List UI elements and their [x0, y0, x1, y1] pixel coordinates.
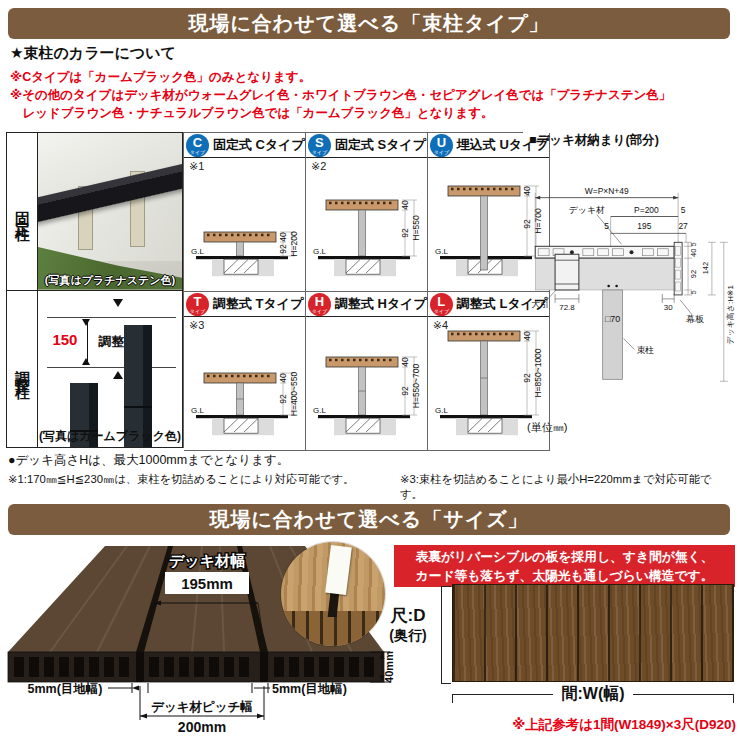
ref-line-top	[47, 317, 177, 318]
note-bullet: ●デッキ高さHは、最大1000mmまでとなります。	[8, 452, 734, 469]
post-type-section: 固定柱 (写真はプラチナステン色) 調整柱	[6, 132, 736, 448]
white-card	[325, 545, 351, 595]
pitch-title: デッキ材ピッチ幅	[151, 700, 253, 714]
depth-label-sub: (奥行)	[372, 627, 444, 645]
badge-sub: タイプ	[312, 309, 327, 314]
gl-label: G.L	[435, 247, 448, 256]
dim-27: 27	[678, 221, 688, 231]
adjustable-post-drawing: 150 調整 (写真はカームブラック色)	[38, 291, 182, 448]
type-cell-c: Cタイプ 固定式 Cタイプ ※1 G.L 40	[184, 133, 306, 292]
pitch-value: 200mm	[178, 719, 226, 735]
adjustable-post-label: 調整柱	[7, 291, 38, 448]
gap-5: 5	[681, 205, 686, 215]
gl-label: G.L	[191, 406, 204, 415]
thickness-label: 40mm	[383, 651, 395, 683]
type-cell-h: Hタイプ 調整式 Hタイプ G.L 40	[306, 292, 428, 451]
badge-letter: S	[315, 136, 324, 149]
badge-letter: T	[194, 295, 202, 308]
color-note-block: ★束柱のカラーについて ※Cタイプは「カームブラック色」のみとなります。 ※その…	[10, 44, 736, 122]
type-h-title: 調整式 Hタイプ	[335, 295, 427, 313]
post-type-grid: Cタイプ 固定式 Cタイプ ※1 G.L 40	[183, 132, 523, 448]
color-note-heading: ★束柱のカラーについて	[10, 44, 736, 63]
deck-width-title: デッキ材幅	[169, 552, 245, 569]
dim-40: 40	[400, 200, 410, 210]
rdim-5a: 5	[690, 242, 697, 246]
type-s-badge: Sタイプ	[308, 134, 331, 157]
deck-height-label: デッキ高さ:H※1	[726, 284, 735, 344]
type-c-badge: Cタイプ	[186, 134, 209, 157]
dim-195: 195	[637, 221, 651, 231]
dim-40: 40	[278, 232, 288, 242]
badge-letter: U	[437, 136, 446, 149]
dim-h: H=550~700	[411, 364, 421, 409]
badge-sub: タイプ	[312, 150, 327, 155]
deck-detail-title: ■デッキ材納まり(部分)	[529, 132, 736, 149]
dim-92: 92	[278, 394, 288, 404]
dim-728: 72.8	[559, 303, 575, 312]
depth-bracket	[441, 586, 451, 684]
badge-letter: C	[193, 136, 202, 149]
type-l-badge: Lタイプ	[430, 293, 453, 316]
dim-92: 92	[400, 386, 410, 396]
type-c-title: 固定式 Cタイプ	[213, 136, 305, 154]
reference-size-note: ※上記参考は1間(W1849)×3尺(D920)	[512, 716, 736, 734]
post-photo-panel: 固定柱 (写真はプラチナステン色) 調整柱	[6, 132, 183, 448]
fixed-post-label: 固定柱	[7, 133, 38, 290]
arrow-up-icon	[113, 371, 123, 379]
fixed-post-row: 固定柱 (写真はプラチナステン色)	[7, 133, 182, 291]
dim-h: H=400~550	[289, 372, 299, 417]
feature-line-2: カード等も落ちず、太陽光も通しづらい構造です。	[416, 566, 714, 585]
feature-line-1: 表裏がリバーシブルの板を採用し、すき間が無く、	[415, 547, 713, 566]
color-note-line2: ※その他のタイプはデッキ材がウォームグレイ色・ホワイトブラウン色・セピアグレイ色…	[10, 86, 736, 104]
gap-left-label: 5mm(目地幅)	[27, 682, 102, 696]
fixed-post-caption: (写真はプラチナステン色)	[38, 273, 182, 288]
pitch-dim: P=200	[634, 205, 659, 215]
post-size-label: □70	[605, 314, 620, 324]
card-gap-inset-photo	[281, 542, 385, 646]
dim-30: 30	[664, 303, 673, 312]
note-3: ※3:束柱を切詰めることにより最小H=220mmまで対応可能です。	[400, 472, 734, 502]
reversible-feature-box: 表裏がリバーシブルの板を採用し、すき間が無く、 カード等も落ちず、太陽光も通しづ…	[394, 545, 735, 587]
type-t-badge: Tタイプ	[186, 293, 209, 316]
dim-arrow-bottom-icon	[82, 358, 90, 365]
dim-5: 5	[604, 221, 609, 231]
depth-label: 尺:D (奥行)	[372, 604, 444, 645]
dim-arrow-top-icon	[82, 319, 90, 326]
adjust-range-word: 調整	[98, 333, 124, 351]
width-line-right	[633, 694, 734, 703]
catalog-page: 現場に合わせて選べる「束柱タイプ」 ★束柱のカラーについて ※Cタイプは「カーム…	[0, 0, 740, 740]
rdim-92: 92	[689, 270, 698, 278]
rdim-40: 40	[689, 249, 698, 257]
rdim-5b: 5	[690, 290, 697, 294]
post-label: 束柱	[636, 345, 654, 355]
type-t-title: 調整式 Tタイプ	[213, 295, 303, 313]
gap-right-label: 5mm(目地幅)	[272, 682, 347, 696]
dim-h: H=550	[411, 215, 421, 241]
deck-material-label: デッキ材	[569, 205, 605, 215]
width-dimension-row: 間:W(幅)	[452, 688, 734, 709]
dim-92: 92	[400, 228, 410, 238]
section-banner-size: 現場に合わせて選べる「サイズ」	[8, 504, 730, 535]
type-cell-t: Tタイプ 調整式 Tタイプ ※3 G.L	[184, 292, 306, 451]
w-formula: W=P×N+49	[585, 186, 629, 196]
type-u-badge: Uタイプ	[430, 134, 453, 157]
rdim-142: 142	[701, 262, 710, 274]
type-s-title: 固定式 Sタイプ	[335, 136, 426, 154]
note-1: ※1:170㎜≦H≦230㎜は、束柱を切詰めることにより対応可能です。	[8, 472, 400, 502]
adjust-range-value: 150	[52, 331, 77, 348]
badge-sub: タイプ	[190, 309, 205, 314]
adjustable-post-caption: (写真はカームブラック色)	[38, 428, 182, 445]
type-h-badge: Hタイプ	[308, 293, 331, 316]
gl-label: G.L	[313, 247, 326, 256]
ref-line-bottom	[47, 367, 177, 368]
deck-plan-view	[452, 584, 734, 682]
color-note-line3: レッドブラウン色・ナチュラルブラウン色では「カームブラック色」となります。	[10, 104, 736, 122]
dim-92: 92	[278, 244, 288, 254]
type-t-diagram: G.L 40 92 H=400~550	[184, 317, 305, 450]
unit-label: (単位㎜)	[527, 420, 567, 435]
deck-detail-panel: ■デッキ材納まり(部分) W=P×N+49 デッキ材 P=200 5 5 195…	[523, 132, 736, 448]
type-s-diagram: G.L 40 92 H=550	[306, 158, 427, 291]
gl-label: G.L	[435, 406, 448, 415]
fascia-label: 幕板	[686, 314, 704, 324]
arrow-down-icon	[113, 299, 123, 307]
badge-letter: L	[437, 295, 445, 308]
gl-label: G.L	[191, 247, 204, 256]
section-banner-post-type: 現場に合わせて選べる「束柱タイプ」	[8, 8, 730, 39]
gl-label: G.L	[313, 406, 326, 415]
fixed-post-photo: (写真はプラチナステン色)	[38, 133, 182, 290]
dim-h: H=200	[289, 231, 299, 257]
type-c-diagram: G.L 40 92 H=200	[184, 158, 305, 291]
size-section: デッキ材幅 195mm 5mm(目地幅) 5mm(目地幅) デッキ材ピッチ幅 2…	[0, 540, 740, 740]
dim-40: 40	[400, 357, 410, 367]
badge-sub: タイプ	[190, 150, 205, 155]
badge-letter: H	[315, 295, 324, 308]
width-line-left	[452, 694, 553, 703]
type-h-diagram: G.L 40 92 H=550~700	[306, 317, 427, 450]
badge-sub: タイプ	[434, 309, 449, 314]
color-note-line1: ※Cタイプは「カームブラック色」のみとなります。	[10, 68, 736, 86]
deck-detail-drawing: W=P×N+49 デッキ材 P=200 5 5 195 27	[527, 151, 736, 419]
badge-sub: タイプ	[434, 150, 449, 155]
depth-label-main: 尺:D	[372, 604, 444, 627]
deck-width-value: 195mm	[181, 575, 233, 592]
dim-40: 40	[278, 373, 288, 383]
adjustable-post-row: 調整柱 150 調整 (写真はカームブラック色)	[7, 291, 182, 448]
type-cell-s: Sタイプ 固定式 Sタイプ ※2 G.L 40	[306, 133, 428, 292]
width-label: 間:W(幅)	[561, 684, 624, 705]
